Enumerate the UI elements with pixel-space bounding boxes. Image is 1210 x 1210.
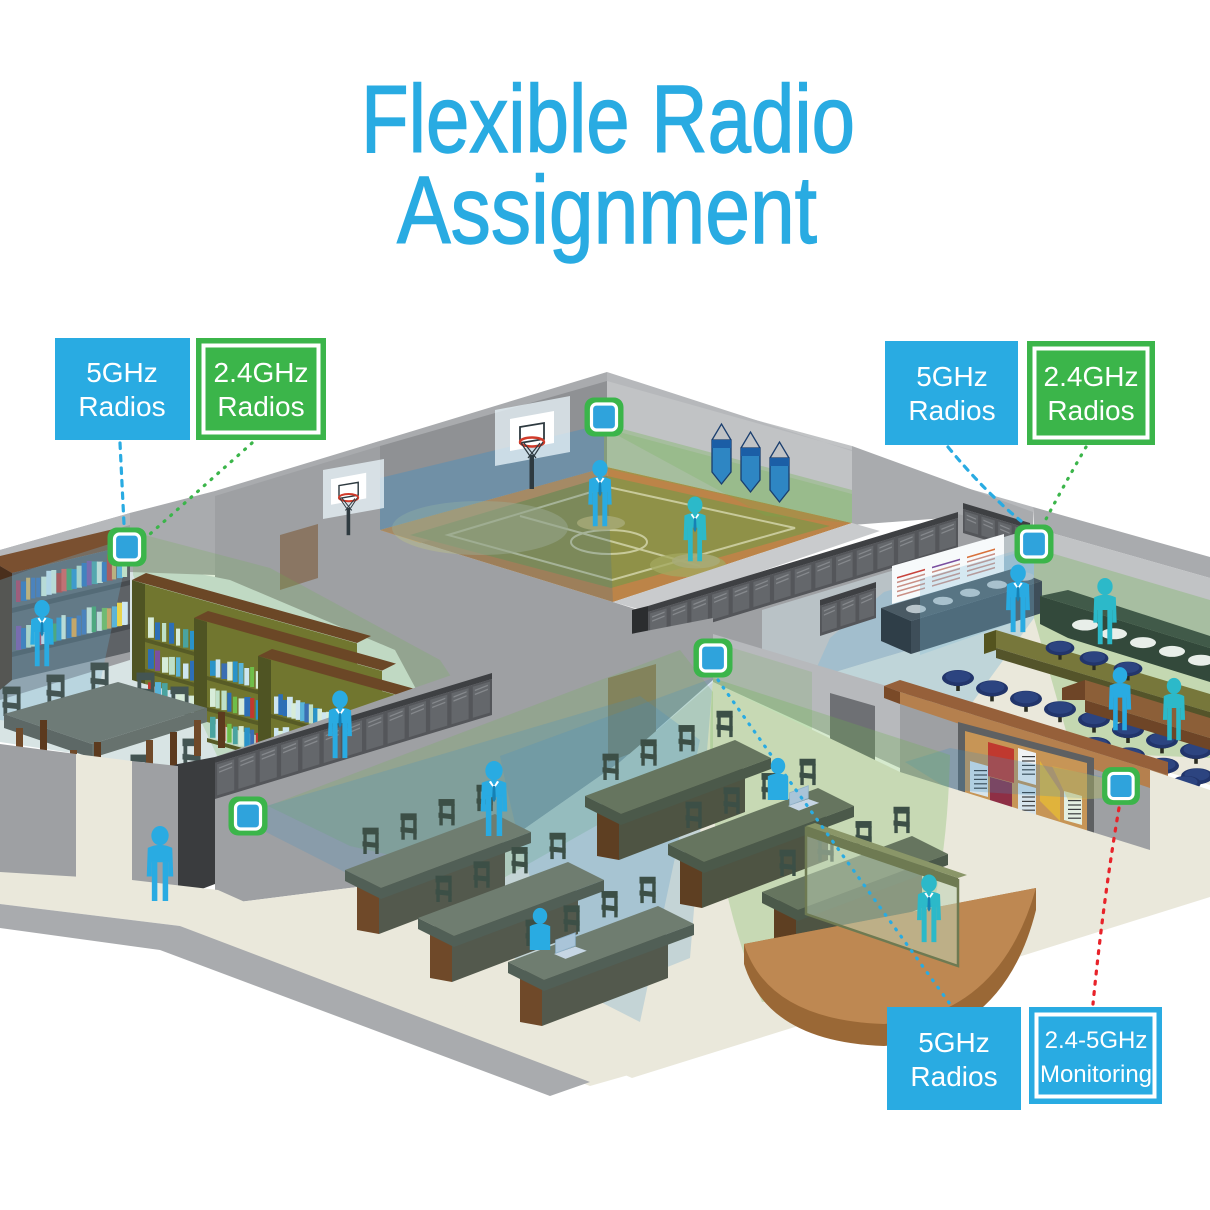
svg-text:2.4GHz: 2.4GHz [1044,361,1139,392]
svg-text:Monitoring: Monitoring [1040,1061,1152,1088]
svg-text:5GHz: 5GHz [916,361,988,392]
svg-text:Assignment: Assignment [397,157,817,264]
svg-text:2.4GHz: 2.4GHz [214,357,309,388]
svg-text:Radios: Radios [1047,395,1134,426]
svg-text:5GHz: 5GHz [86,357,158,388]
svg-text:2.4-5GHz: 2.4-5GHz [1045,1027,1148,1054]
svg-text:Radios: Radios [908,395,995,426]
svg-text:5GHz: 5GHz [918,1027,990,1058]
svg-text:Radios: Radios [78,391,165,422]
svg-text:Radios: Radios [910,1061,997,1092]
svg-text:Radios: Radios [217,391,304,422]
